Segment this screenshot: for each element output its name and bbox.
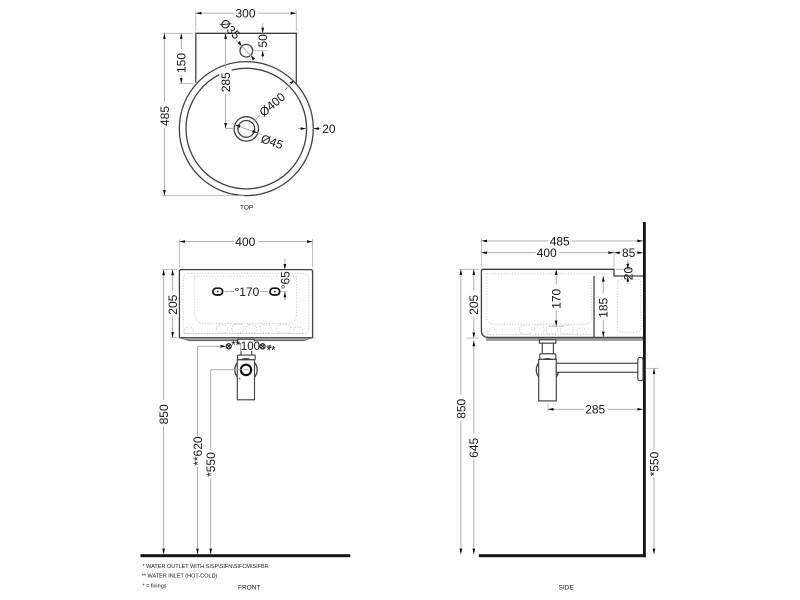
svg-text:FRONT: FRONT: [238, 585, 260, 592]
svg-text:400: 400: [537, 246, 557, 260]
svg-text:205: 205: [467, 294, 481, 314]
svg-text:°170: °170: [235, 285, 260, 299]
svg-text:185: 185: [597, 297, 611, 317]
svg-text:170: 170: [550, 288, 564, 308]
svg-text:285: 285: [585, 403, 605, 417]
svg-text:**620: **620: [191, 436, 205, 466]
svg-text:TOP: TOP: [240, 205, 253, 212]
svg-text:400: 400: [235, 235, 255, 249]
svg-text:645: 645: [467, 437, 481, 457]
svg-text:*550: *550: [204, 452, 218, 477]
svg-text:** WATER INLET (HOT-COLD): ** WATER INLET (HOT-COLD): [142, 574, 218, 580]
svg-text:°65: °65: [278, 271, 292, 289]
svg-text:850: 850: [454, 398, 468, 418]
svg-text:850: 850: [157, 404, 171, 424]
svg-text:100: 100: [241, 341, 260, 353]
svg-text:**: **: [231, 340, 240, 352]
svg-text:SIDE: SIDE: [559, 585, 575, 592]
svg-text:20: 20: [322, 122, 336, 136]
svg-text:*550: *550: [647, 451, 661, 476]
svg-text:50: 50: [256, 34, 270, 48]
svg-text:**: **: [267, 345, 276, 357]
svg-text:485: 485: [158, 106, 172, 126]
svg-text:300: 300: [236, 7, 256, 21]
svg-text:* WATER OUTLET WITH SISP\SIFN: * WATER OUTLET WITH SISP\SIFN\SIFCM\SIFB…: [143, 564, 269, 570]
svg-text:20: 20: [621, 267, 635, 281]
svg-text:205: 205: [166, 294, 180, 314]
svg-text:85: 85: [622, 246, 636, 260]
svg-text:* = fixings: * = fixings: [143, 584, 167, 590]
svg-text:285: 285: [219, 72, 233, 92]
svg-text:150: 150: [175, 53, 189, 73]
